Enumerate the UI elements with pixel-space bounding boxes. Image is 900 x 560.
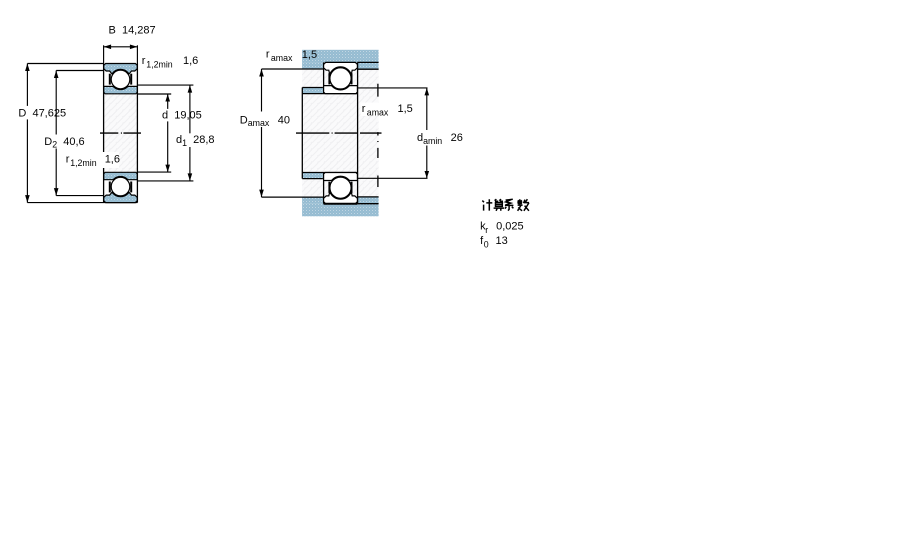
svg-text:r: r xyxy=(142,55,146,67)
svg-text:d 19,05: d 19,05 xyxy=(162,110,202,122)
svg-text:1,2min: 1,2min xyxy=(146,59,173,69)
svg-text:1,5: 1,5 xyxy=(302,49,317,61)
svg-text:r: r xyxy=(266,49,270,61)
svg-text:d1 28,8: d1 28,8 xyxy=(176,134,215,148)
svg-text:1,6: 1,6 xyxy=(105,154,120,166)
svg-text:r: r xyxy=(485,225,488,235)
svg-text:r: r xyxy=(66,154,70,166)
svg-text:0,025: 0,025 xyxy=(496,221,524,233)
svg-text:D 47,625: D 47,625 xyxy=(18,108,66,120)
svg-text:1,6: 1,6 xyxy=(183,55,198,67)
svg-text:0: 0 xyxy=(484,240,489,250)
svg-text:40: 40 xyxy=(278,114,290,126)
svg-text:D2 40,6: D2 40,6 xyxy=(44,136,84,150)
svg-text:13: 13 xyxy=(496,235,508,247)
svg-text:amax: amax xyxy=(271,53,293,63)
svg-text:1,5: 1,5 xyxy=(398,103,413,115)
svg-text:26: 26 xyxy=(451,132,463,144)
svg-text:1,2min: 1,2min xyxy=(70,158,97,168)
svg-text:amax: amax xyxy=(367,107,389,117)
svg-text:B 14,287: B 14,287 xyxy=(109,25,156,37)
svg-text:r: r xyxy=(362,103,366,115)
